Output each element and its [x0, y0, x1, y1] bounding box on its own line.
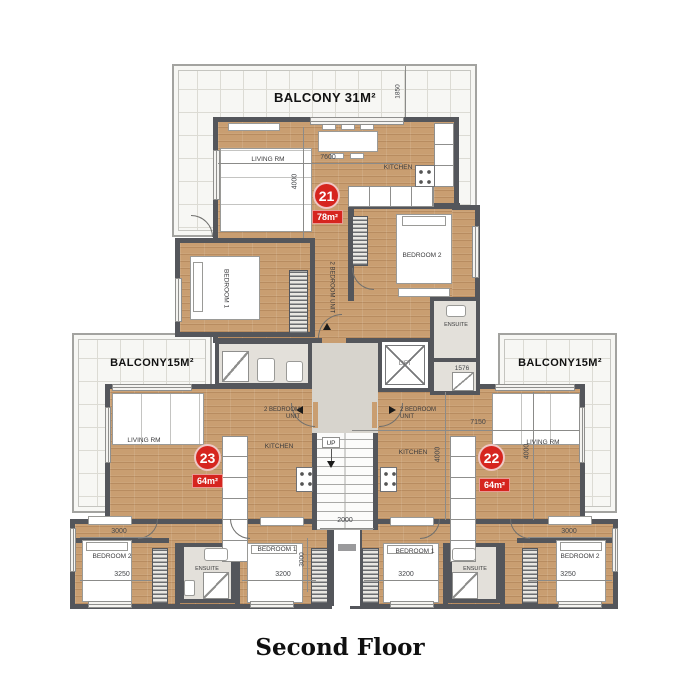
wardrobe	[522, 548, 538, 604]
stair-void	[332, 530, 362, 606]
unit-type-line1: 2 BEDROOM	[250, 407, 300, 414]
lift-label: LIFT	[390, 361, 420, 368]
dim-3250-left: 3250	[92, 571, 152, 578]
dim-line	[80, 580, 152, 581]
kitchen-label-apt23: KITCHEN	[258, 443, 300, 450]
dim-line	[80, 537, 152, 538]
bedroom1-label-apt22: BEDROOM 1	[387, 548, 443, 555]
door-gap-apt22	[372, 402, 377, 428]
shelf-apt21-bedroom2	[398, 288, 450, 297]
kitchen-tall-unit-apt21	[434, 123, 454, 187]
unit-type-label-apt23: 2 BEDROOM UNIT	[250, 407, 300, 420]
stove-apt23	[296, 467, 313, 492]
unit-type-label-apt22: 2 BEDROOM UNIT	[400, 407, 450, 420]
shower-apt21-ensuite	[452, 372, 474, 391]
window	[175, 278, 182, 322]
living-label-apt21: LIVING RM	[238, 156, 298, 163]
dim-7600: 7600	[298, 154, 358, 161]
tv-unit-apt21	[228, 123, 280, 131]
unit-area-22: 64m²	[479, 478, 510, 492]
shower-apt23-ensuite	[203, 572, 229, 599]
window	[250, 601, 294, 608]
unit-badge-21: 21	[313, 182, 340, 209]
unit-type-line2: UNIT	[400, 414, 450, 421]
window	[495, 384, 575, 391]
toilet	[204, 548, 228, 561]
window	[612, 528, 618, 572]
unit-type-line2: UNIT	[250, 414, 300, 421]
unit-type-line1: 2 BEDROOM	[400, 407, 450, 414]
kitchen-counter-apt23	[222, 436, 248, 562]
dim-line	[533, 392, 534, 520]
kitchen-label-apt21: KITCHEN	[368, 164, 428, 171]
dim-line	[528, 537, 612, 538]
window	[105, 407, 111, 463]
dim-line	[364, 580, 438, 581]
shelf	[260, 517, 304, 526]
ensuite-label-apt22: ENSUITE	[450, 566, 500, 572]
stairs-down-arrow	[327, 461, 335, 468]
dim-3250-right: 3250	[538, 571, 598, 578]
sink	[286, 361, 303, 382]
stair-landing-step	[338, 544, 356, 551]
window	[390, 601, 434, 608]
ensuite-label-apt21: ENSUITE	[434, 322, 478, 328]
door-gap-apt21	[322, 338, 346, 343]
shelf	[548, 516, 592, 525]
dining-table-apt21	[318, 131, 378, 152]
window	[70, 528, 76, 572]
living-label-apt23: LIVING RM	[114, 437, 174, 444]
toilet	[452, 548, 476, 561]
stove-apt22	[380, 467, 397, 492]
entry-arrow-apt22	[389, 406, 396, 414]
wardrobe	[352, 216, 368, 266]
dim-4000-apt21: 4000	[292, 152, 299, 212]
floor-plan: UP BALCONY 31M² BALCONY15M² BALCONY15M² …	[0, 0, 680, 700]
kitchen-counter-apt22	[450, 436, 476, 562]
balcony-right-label: BALCONY15M²	[490, 357, 630, 369]
kitchen-label-apt22: KITCHEN	[392, 449, 434, 456]
bedroom2-label-apt21: BEDROOM 2	[392, 252, 452, 259]
kitchen-counter-apt21	[348, 186, 434, 207]
unit-badge-22: 22	[478, 444, 505, 471]
toilet	[257, 358, 275, 382]
sink	[184, 580, 195, 596]
corridor-hall	[312, 343, 378, 433]
stairs-up-label: UP	[322, 437, 340, 448]
dim-line	[528, 580, 612, 581]
dim-1576: 1576	[440, 365, 484, 372]
page-title: Second Floor	[0, 634, 680, 661]
dim-3000-left: 3000	[89, 528, 149, 535]
dim-3200-right: 3200	[376, 571, 436, 578]
window	[579, 407, 585, 463]
wardrobe	[152, 548, 168, 604]
dim-line	[320, 528, 374, 529]
window	[310, 117, 404, 125]
ensuite-label-apt23: ENSUITE	[182, 566, 232, 572]
dim-7150: 7150	[448, 419, 508, 426]
wardrobe	[311, 548, 328, 604]
bedroom2-label-apt22: BEDROOM 2	[552, 553, 608, 560]
pillow	[560, 542, 602, 551]
stairs-up-line	[331, 449, 332, 461]
unit-area-23: 64m²	[192, 474, 223, 488]
dim-3000-right: 3000	[539, 528, 599, 535]
balcony-left-label: BALCONY15M²	[82, 357, 222, 369]
shower-apt21-bathroom	[222, 351, 249, 382]
unit-badge-23: 23	[194, 444, 221, 471]
window	[558, 601, 602, 608]
bedroom1-label-apt21: BEDROOM 1	[222, 259, 229, 319]
window	[88, 601, 132, 608]
wardrobe	[289, 270, 308, 334]
dim-1850: 1850	[395, 62, 402, 122]
window	[472, 226, 479, 278]
bedroom1-label-apt23: BEDROOM 1	[249, 546, 305, 553]
unit-area-21: 78m²	[312, 210, 343, 224]
toilet	[446, 305, 466, 317]
dim-line	[352, 430, 580, 431]
bedroom2-label-apt23: BEDROOM 2	[84, 553, 140, 560]
pillow	[86, 542, 128, 551]
entry-arrow-apt21	[323, 323, 331, 330]
living-label-apt22: LIVING RM	[513, 439, 573, 446]
dim-line	[307, 538, 308, 592]
shelf	[88, 516, 132, 525]
dim-4000-apt22-a: 4000	[435, 425, 442, 485]
pillow	[193, 262, 203, 312]
unit-type-label-apt21: 2 BEDROOM UNIT	[328, 257, 335, 317]
dim-3000-vert: 3000	[299, 530, 306, 590]
dim-4000-apt22-b: 4000	[524, 422, 531, 482]
dim-line	[303, 127, 304, 238]
wall-ensuite22-right	[500, 543, 505, 605]
dim-2000: 2000	[330, 517, 360, 524]
wall-ensuite21-divider	[434, 358, 476, 362]
pillow	[402, 216, 446, 226]
shower-apt22-ensuite	[452, 572, 478, 599]
window	[112, 384, 192, 391]
window	[213, 150, 220, 200]
